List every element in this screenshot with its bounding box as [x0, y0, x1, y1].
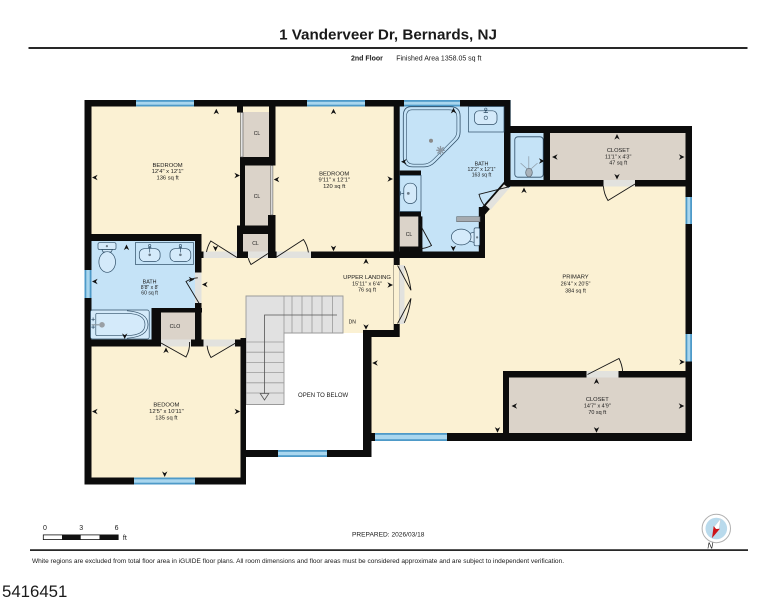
svg-text:47 sq ft: 47 sq ft — [609, 161, 627, 167]
svg-text:CL: CL — [406, 232, 413, 238]
svg-text:CL: CL — [252, 241, 259, 247]
svg-text:ft: ft — [123, 535, 127, 542]
svg-text:384 sq ft: 384 sq ft — [565, 288, 586, 294]
svg-text:163 sq ft: 163 sq ft — [472, 173, 492, 179]
svg-text:9'11" x 12'1": 9'11" x 12'1" — [319, 178, 350, 184]
svg-text:PRIMARY: PRIMARY — [562, 275, 588, 281]
svg-text:26'4" x 20'5": 26'4" x 20'5" — [561, 282, 591, 288]
svg-text:OPEN TO BELOW: OPEN TO BELOW — [298, 393, 348, 399]
svg-text:PREPARED: 2026/03/18: PREPARED: 2026/03/18 — [352, 532, 425, 539]
svg-text:5416451: 5416451 — [2, 582, 67, 600]
svg-text:CLOSET: CLOSET — [607, 148, 630, 154]
svg-text:CL: CL — [254, 194, 261, 200]
svg-text:0: 0 — [43, 525, 47, 532]
svg-text:12'5" x 10'11": 12'5" x 10'11" — [149, 409, 184, 415]
svg-text:BEDROOM: BEDROOM — [319, 172, 349, 178]
svg-text:70 sq ft: 70 sq ft — [588, 410, 606, 416]
svg-text:White regions are excluded fro: White regions are excluded from total fl… — [32, 558, 564, 565]
svg-text:3: 3 — [79, 525, 83, 532]
svg-text:2nd Floor: 2nd Floor — [351, 56, 383, 63]
svg-text:120 sq ft: 120 sq ft — [323, 184, 346, 190]
svg-text:12'4" x 12'1": 12'4" x 12'1" — [152, 169, 184, 175]
svg-text:CLOSET: CLOSET — [586, 397, 609, 403]
svg-text:14'7" x 4'9": 14'7" x 4'9" — [584, 403, 611, 409]
svg-text:N: N — [707, 542, 713, 551]
svg-text:76 sq ft: 76 sq ft — [358, 288, 377, 294]
svg-text:11'1" x 4'3": 11'1" x 4'3" — [605, 154, 631, 160]
svg-text:CL: CL — [254, 131, 261, 137]
svg-text:136 sq ft: 136 sq ft — [156, 176, 179, 182]
svg-text:BEDROOM: BEDROOM — [152, 163, 182, 169]
svg-text:CLO: CLO — [170, 324, 181, 330]
svg-text:15'11" x 6'4": 15'11" x 6'4" — [352, 281, 382, 287]
svg-text:60 sq ft: 60 sq ft — [141, 291, 158, 297]
svg-text:UPPER LANDING: UPPER LANDING — [343, 275, 391, 281]
svg-text:BEDOOM: BEDOOM — [153, 402, 179, 408]
svg-text:Finished Area 1358.05 sq ft: Finished Area 1358.05 sq ft — [396, 56, 481, 63]
svg-text:DN: DN — [349, 320, 357, 326]
svg-text:1 Vanderveer Dr, Bernards, NJ: 1 Vanderveer Dr, Bernards, NJ — [279, 27, 497, 44]
svg-text:6: 6 — [115, 525, 119, 532]
svg-text:135 sq ft: 135 sq ft — [155, 415, 178, 421]
